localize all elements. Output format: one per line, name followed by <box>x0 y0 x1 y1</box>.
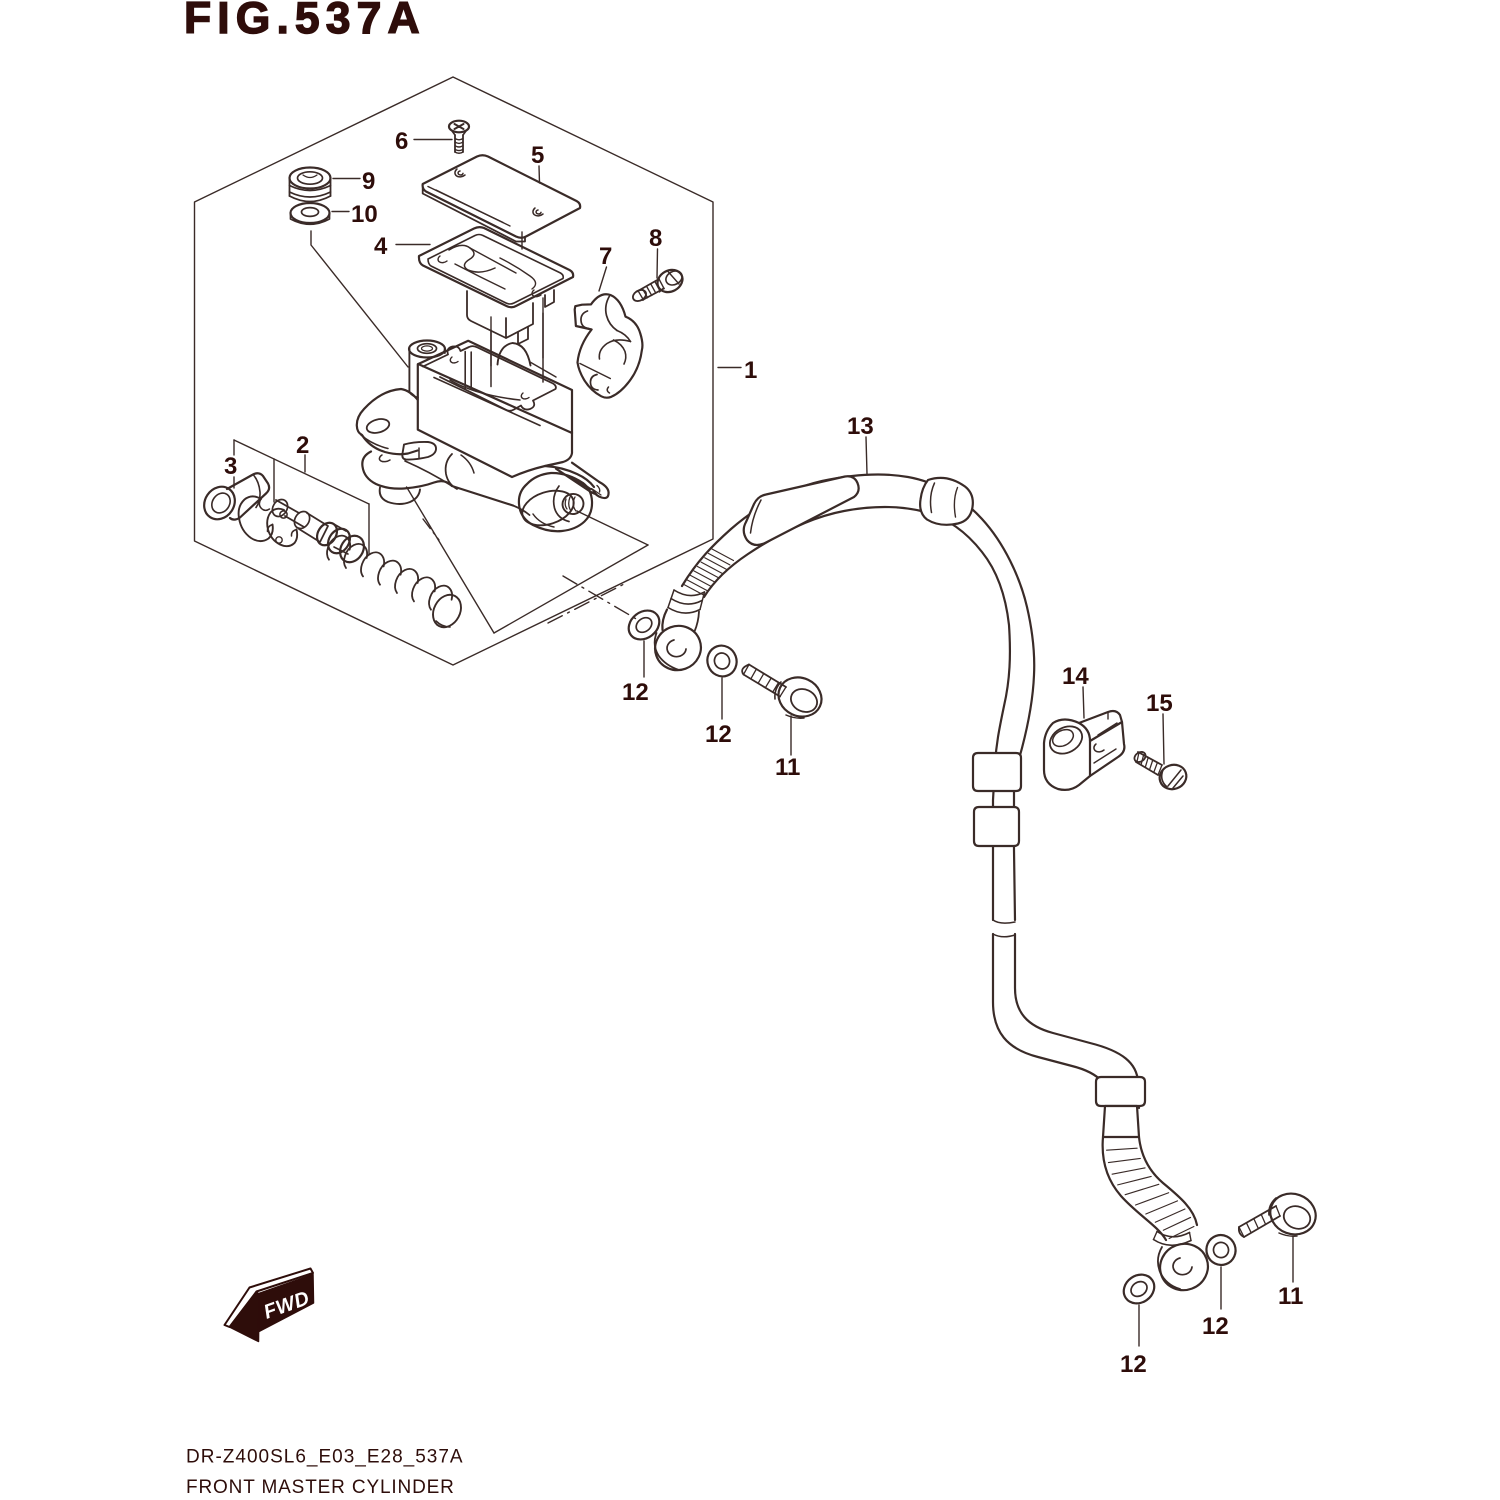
svg-text:4: 4 <box>374 233 388 260</box>
svg-text:1: 1 <box>744 357 757 384</box>
svg-text:14: 14 <box>1062 663 1089 690</box>
svg-text:2: 2 <box>296 432 309 459</box>
svg-text:13: 13 <box>847 413 874 440</box>
svg-text:7: 7 <box>599 243 612 270</box>
svg-text:9: 9 <box>362 168 375 195</box>
svg-text:12: 12 <box>1202 1313 1229 1340</box>
svg-text:6: 6 <box>395 128 408 155</box>
svg-text:12: 12 <box>705 721 732 748</box>
svg-text:12: 12 <box>622 679 649 706</box>
svg-text:8: 8 <box>649 225 662 252</box>
svg-text:FRONT MASTER CYLINDER: FRONT MASTER CYLINDER <box>186 1477 455 1498</box>
svg-text:3: 3 <box>224 453 237 480</box>
svg-text:5: 5 <box>531 142 544 169</box>
svg-text:15: 15 <box>1146 690 1173 717</box>
svg-text:DR-Z400SL6_E03_E28_537A: DR-Z400SL6_E03_E28_537A <box>186 1447 464 1468</box>
svg-text:FIG.537A: FIG.537A <box>184 0 426 43</box>
svg-text:11: 11 <box>1278 1283 1303 1310</box>
svg-text:12: 12 <box>1120 1351 1147 1378</box>
svg-text:10: 10 <box>351 201 378 228</box>
svg-text:11: 11 <box>775 754 800 781</box>
